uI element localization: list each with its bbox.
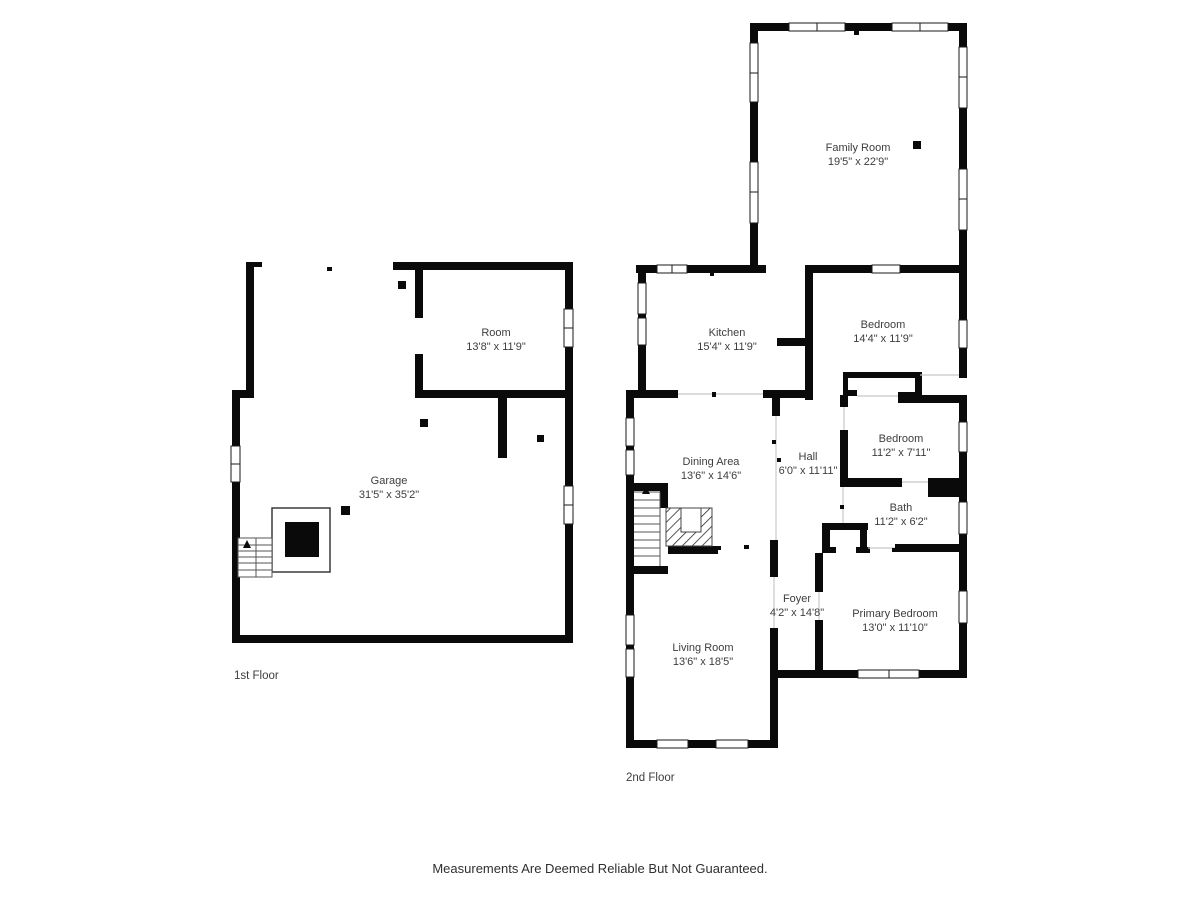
- room-label-hall: Hall 6'0" x 11'11": [779, 450, 838, 478]
- room-label-dining-area: Dining Area 13'6" x 14'6": [681, 455, 741, 483]
- room-dims: 6'0" x 11'11": [779, 464, 838, 478]
- floor-label-2nd: 2nd Floor: [626, 772, 675, 784]
- room-dims: 13'6" x 14'6": [681, 469, 741, 483]
- room-label-room: Room 13'8" x 11'9": [466, 326, 526, 354]
- room-label-foyer: Foyer 4'2" x 14'8": [770, 592, 824, 620]
- room-name: Family Room: [826, 141, 891, 155]
- room-label-family-room: Family Room 19'5" x 22'9": [826, 141, 891, 169]
- room-dims: 13'6" x 18'5": [672, 655, 733, 669]
- family-room-markers: [854, 31, 921, 149]
- room-name: Bedroom: [872, 432, 931, 446]
- room-label-primary-bedroom: Primary Bedroom 13'0" x 11'10": [852, 607, 938, 635]
- room-name: Foyer: [770, 592, 824, 606]
- room-dims: 19'5" x 22'9": [826, 155, 891, 169]
- room-door-opening: [414, 318, 424, 354]
- room-label-bedroom-upper: Bedroom 14'4" x 11'9": [853, 318, 913, 346]
- disclaimer-text: Measurements Are Deemed Reliable But Not…: [0, 861, 1200, 876]
- room-label-garage: Garage 31'5" x 35'2": [359, 474, 419, 502]
- room-dims: 14'4" x 11'9": [853, 332, 913, 346]
- room-dims: 4'2" x 14'8": [770, 606, 824, 620]
- room-name: Kitchen: [697, 326, 757, 340]
- room-name: Dining Area: [681, 455, 741, 469]
- stair-landing-hatch: [666, 508, 712, 546]
- furnace: [272, 508, 330, 572]
- room-name: Garage: [359, 474, 419, 488]
- floor-label-1st: 1st Floor: [234, 670, 279, 682]
- first-floor-walls: [232, 262, 573, 643]
- floor-plan-canvas: Family Room 19'5" x 22'9" Room 13'8" x 1…: [0, 0, 1200, 900]
- stairs-first-floor: [238, 538, 272, 577]
- floor-plan-drawing: [0, 0, 1200, 900]
- room-label-kitchen: Kitchen 15'4" x 11'9": [697, 326, 757, 354]
- family-room-window-dividers: [750, 23, 967, 199]
- family-room-windows: [750, 23, 967, 230]
- second-floor-markers: [710, 272, 896, 552]
- room-name: Bath: [874, 501, 927, 515]
- first-floor-markers: [327, 267, 544, 641]
- room-name: Primary Bedroom: [852, 607, 938, 621]
- room-name: Living Room: [672, 641, 733, 655]
- room-name: Room: [466, 326, 526, 340]
- room-dims: 31'5" x 35'2": [359, 488, 419, 502]
- room-name: Hall: [779, 450, 838, 464]
- room-name: Bedroom: [853, 318, 913, 332]
- room-label-living-room: Living Room 13'6" x 18'5": [672, 641, 733, 669]
- room-dims: 11'2" x 7'11": [872, 446, 931, 460]
- room-label-bath: Bath 11'2" x 6'2": [874, 501, 927, 529]
- room-dims: 13'0" x 11'10": [852, 621, 938, 635]
- room-dims: 15'4" x 11'9": [697, 340, 757, 354]
- stairs-second-floor: [634, 492, 660, 566]
- room-label-bedroom-middle: Bedroom 11'2" x 7'11": [872, 432, 931, 460]
- room-dims: 11'2" x 6'2": [874, 515, 927, 529]
- room-dims: 13'8" x 11'9": [466, 340, 526, 354]
